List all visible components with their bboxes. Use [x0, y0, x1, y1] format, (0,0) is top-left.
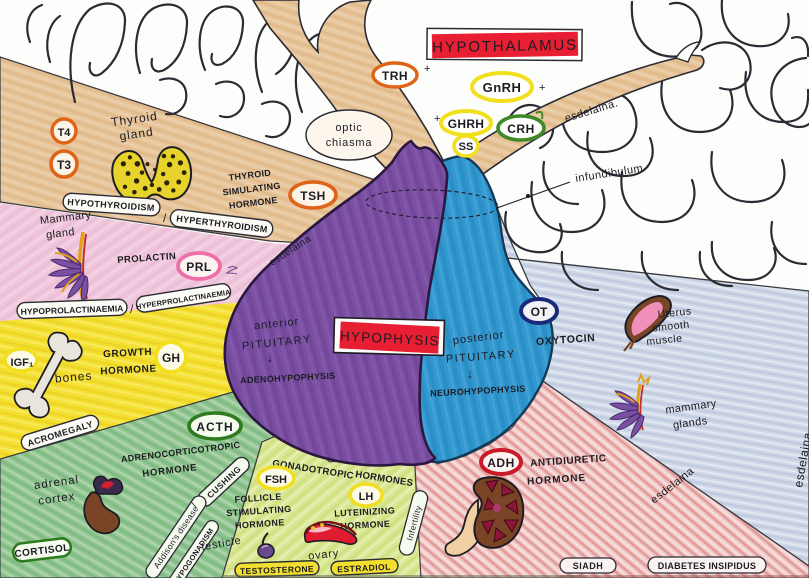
- svg-text:↓: ↓: [467, 366, 474, 381]
- svg-text:+: +: [434, 113, 440, 125]
- svg-text:DIABETES INSIPIDUS: DIABETES INSIPIDUS: [658, 561, 756, 571]
- svg-text:SIADH: SIADH: [573, 561, 604, 571]
- svg-text:optic: optic: [335, 122, 362, 134]
- svg-text:GHRH: GHRH: [448, 117, 485, 131]
- svg-text:PRL: PRL: [186, 260, 212, 274]
- svg-text:SS: SS: [459, 141, 474, 153]
- svg-text:T3: T3: [57, 158, 71, 172]
- svg-text:GH: GH: [162, 351, 180, 365]
- svg-text:↓: ↓: [267, 350, 274, 365]
- svg-text:+: +: [539, 82, 545, 94]
- svg-text:+: +: [424, 63, 430, 75]
- svg-text:TRH: TRH: [382, 69, 408, 83]
- svg-text:LH: LH: [359, 491, 374, 503]
- svg-text:chiasma: chiasma: [326, 137, 373, 149]
- svg-text:ADH: ADH: [487, 456, 515, 470]
- svg-text:CRH: CRH: [507, 122, 535, 136]
- svg-text:T4: T4: [58, 127, 72, 139]
- svg-text:ACTH: ACTH: [196, 420, 233, 434]
- svg-text:OT: OT: [531, 305, 548, 319]
- svg-text:TSH: TSH: [300, 189, 326, 203]
- svg-text:IGF₁: IGF₁: [11, 357, 34, 369]
- svg-text:FSH: FSH: [265, 474, 287, 486]
- svg-text:HYPOTHALAMUS: HYPOTHALAMUS: [432, 37, 578, 57]
- svg-text:GnRH: GnRH: [483, 80, 522, 95]
